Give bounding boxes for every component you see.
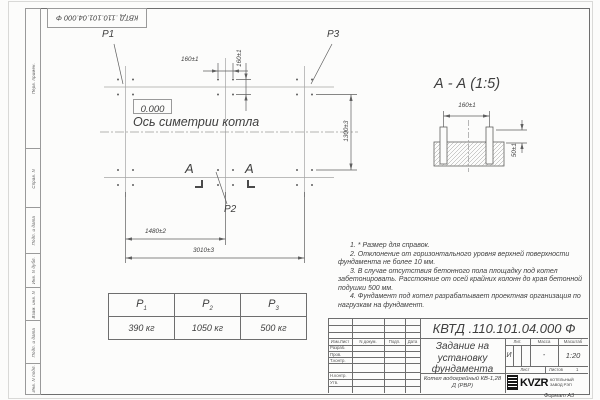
titleblock-header-doc: N докум. [352,340,384,344]
titleblock-line [328,325,420,326]
titleblock-row-prov: Пров. [330,353,341,357]
anchor-stud-left [440,127,447,164]
anchor-bolt-dot [311,184,313,186]
titleblock-line [328,318,329,393]
section-dim-160: 160±1 [450,103,484,109]
titleblock-line [384,318,385,393]
dim-160-vertical: 160±1 [237,43,243,73]
note-1: 1. * Размер для справок. [338,242,590,251]
note-4: 4. Фундамент под котел разрабатывает про… [338,293,590,310]
titleblock-line [352,318,353,393]
anchor-bolt-dot [311,79,313,81]
load-value-p3: 500 кг [241,317,307,340]
anchor-bolt-dot [296,184,298,186]
dim-160-horizontal: 160±1 [181,57,198,63]
titleblock-row-utv: Утв. [330,381,338,385]
titleblock-line [545,366,546,373]
titleblock-line [513,345,514,366]
anchor-bolt-dot [296,169,298,171]
company-name: КОТЕЛЬНЫЙ ЗАВОД РЭП [550,378,577,387]
titleblock-line [328,332,420,333]
notes-block: 1. * Размер для справок. 2. Отклонение о… [338,242,590,310]
section-title: А - А (1:5) [434,77,500,92]
titleblock-line [328,351,420,352]
company-logo: KVZR КОТЕЛЬНЫЙ ЗАВОД РЭП [507,375,577,390]
anchor-bolt-dot [296,79,298,81]
titleblock-lit-value: И [505,352,513,359]
section-letter-left: А [185,162,194,175]
titleblock-line [328,379,420,380]
titleblock-mass-label: Масса [530,340,558,344]
load-header-p1: P1 [109,294,175,317]
kvzr-coil-icon [507,375,518,390]
anchor-bolt-dot [311,94,313,96]
titleblock-line [328,318,588,319]
titleblock-row-nkontr: Н.контр. [330,374,347,378]
anchor-bolt-dot [117,169,119,171]
anchor-bolt-dot [232,169,234,171]
load-header-p2: P2 [175,294,241,317]
titleblock-line [521,345,522,366]
titleblock-scale-label: Масштаб [558,340,588,344]
drawing-sheet: Перв. примен. Справ. N Подп. и дата Инв.… [0,0,600,400]
load-table-header-row: P1 P2 P3 [109,294,307,317]
kvzr-logo-text: KVZR [520,377,548,389]
dim-1300: 1300±3 [344,114,350,148]
anchor-bolt-dot [296,94,298,96]
anchor-bolt-dot [311,169,313,171]
anchor-bolt-dot [117,79,119,81]
zero-level: 0.000 [141,104,165,115]
point-label-p2: P2 [224,205,236,215]
titleblock-line [505,345,588,346]
titleblock-header-date: Дата [405,340,420,344]
format-label: Формат А3 [544,394,574,400]
anchor-bolt-dot [217,79,219,81]
dim-1480: 1480±2 [145,229,166,235]
note-3: 3. В случае отсутствия бетонного пола пл… [338,268,590,294]
note-2: 2. Отклонение от горизонтального уровня … [338,251,590,268]
anchor-bolt-dot [132,184,134,186]
anchor-bolt-dot [132,94,134,96]
titleblock-row-razrab: Разраб. [330,346,345,350]
titleblock-mass-value: - [530,352,558,359]
titleblock-sheet-label: Лист [505,368,545,372]
point-label-p1: P1 [102,30,114,40]
anchor-bolt-dot [232,94,234,96]
titleblock-line [328,363,420,364]
load-value-p2: 1050 кг [175,317,241,340]
titleblock-line [328,386,420,387]
section-dim-50: 50±1 [512,137,518,163]
point-label-p3: P3 [327,30,339,40]
anchor-bolt-dot [217,184,219,186]
anchor-bolt-dot [132,79,134,81]
section-letter-right: А [245,162,254,175]
titleblock-scale-value: 1:20 [558,352,588,360]
titleblock-product: Котел водогрейный КВ-1,28 Д (РВР) [422,376,503,390]
titleblock-sheets-value: 1 [576,368,578,372]
titleblock-sheets-label: Листов [549,368,563,372]
symmetry-axis-label: Ось симетрии котла [133,116,259,129]
load-value-p1: 390 кг [109,317,175,340]
titleblock-header-sign: Подп. [384,340,405,344]
titleblock-line [405,318,406,393]
anchor-bolt-dot [117,94,119,96]
load-table-value-row: 390 кг 1050 кг 500 кг [109,317,307,340]
anchor-bolt-dot [217,169,219,171]
titleblock-row-tkontr: Т.контр. [330,359,346,363]
zero-level-box: 0.000 [133,99,172,114]
anchor-bolt-dot [232,184,234,186]
titleblock-title: Задание на установку фундамента [422,341,503,376]
anchor-bolt-dot [232,79,234,81]
titleblock-doc-number: КВТД .110.101.04.000 Ф [420,322,588,335]
load-table: P1 P2 P3 390 кг 1050 кг 500 кг [108,293,307,340]
dim-3010: 3010±3 [193,248,214,254]
anchor-stud-right [486,127,493,164]
titleblock-lit-label: Лит. [505,340,530,344]
load-header-p3: P3 [241,294,307,317]
anchor-bolt-dot [117,184,119,186]
anchor-bolt-dot [217,94,219,96]
section-cut-marks [195,180,255,188]
anchor-bolt-dot [132,169,134,171]
titleblock-header-izm: Изм.Лист [328,340,352,344]
